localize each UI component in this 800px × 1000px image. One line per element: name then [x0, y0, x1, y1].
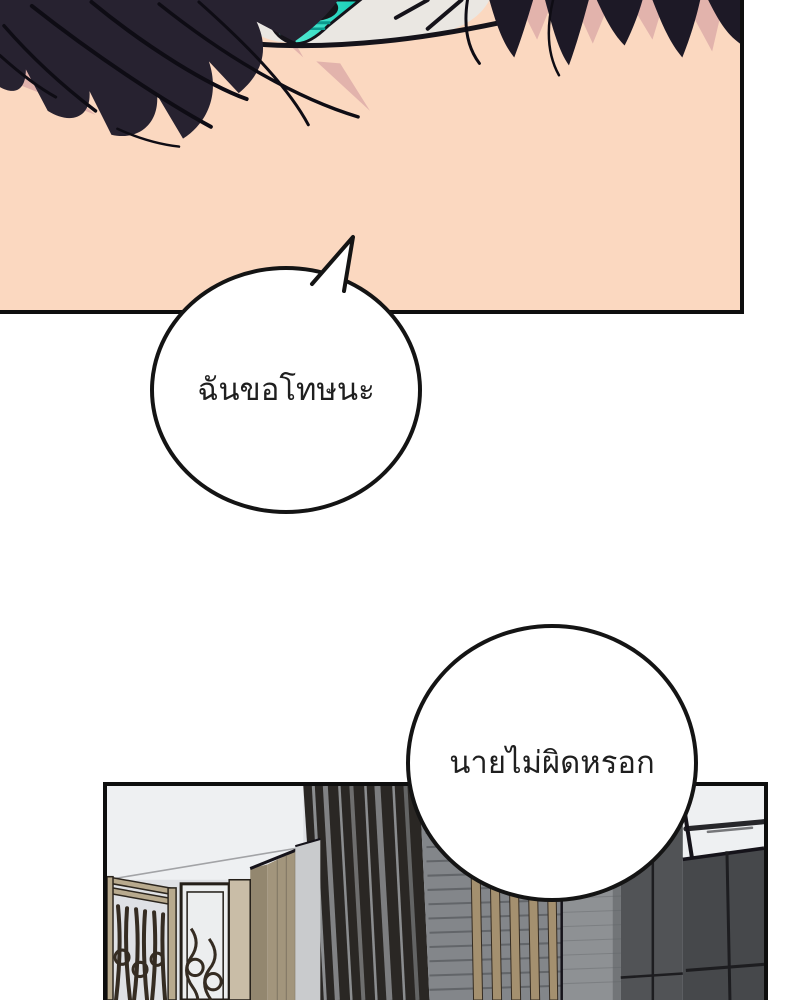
tan-cabinet: [250, 839, 320, 1000]
door: [181, 880, 250, 1000]
speech-bubble-apology: ฉันขอโทษนะ: [150, 266, 422, 514]
face-artwork: [0, 0, 740, 310]
panel-face-closeup: [0, 0, 744, 314]
comic-page: { "page": { "kind": "webtoon comic page"…: [0, 0, 800, 1000]
dark-slat-partition: [303, 786, 429, 1000]
speech-text: นายไม่ผิดหรอก: [449, 745, 655, 781]
speech-bubble-tail: [298, 230, 364, 296]
speech-text: ฉันขอโทษนะ: [197, 372, 374, 408]
speech-bubble-reply: นายไม่ผิดหรอก: [406, 624, 698, 902]
gray-panel: [295, 839, 320, 1000]
